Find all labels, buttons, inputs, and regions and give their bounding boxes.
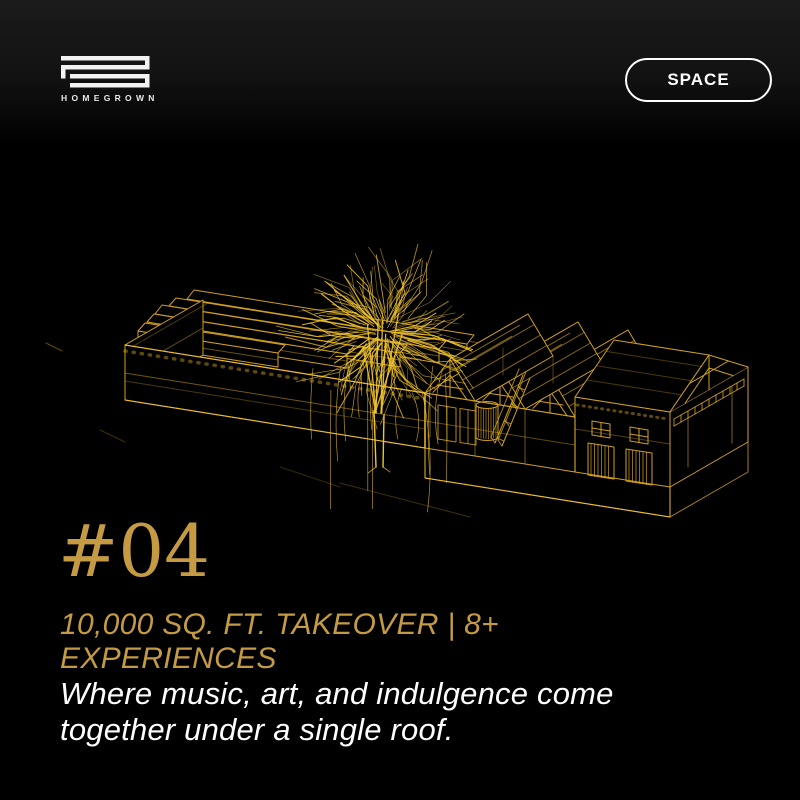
warehouse-sketch (46, 244, 748, 517)
subtitle-line-2: EXPERIENCES (60, 642, 499, 676)
hero-description: Where music, art, and indulgence come to… (60, 676, 614, 748)
brand-wordmark: HOMEGROWN (61, 93, 159, 103)
subtitle-line-1: 10,000 SQ. FT. TAKEOVER | 8+ (60, 608, 499, 642)
slide-number: #04 (58, 514, 210, 590)
homegrown-logo[interactable]: HOMEGROWN (61, 56, 159, 103)
hero-subtitle: 10,000 SQ. FT. TAKEOVER | 8+ EXPERIENCES (60, 608, 499, 676)
barn (575, 340, 748, 487)
space-button[interactable]: SPACE (625, 58, 772, 102)
description-line-1: Where music, art, and indulgence come (60, 676, 614, 712)
description-line-2: together under a single roof. (60, 712, 614, 748)
header: HOMEGROWN SPACE (0, 0, 800, 138)
homegrown-logo-icon (61, 56, 151, 88)
building-wireframe-illustration (40, 215, 760, 535)
